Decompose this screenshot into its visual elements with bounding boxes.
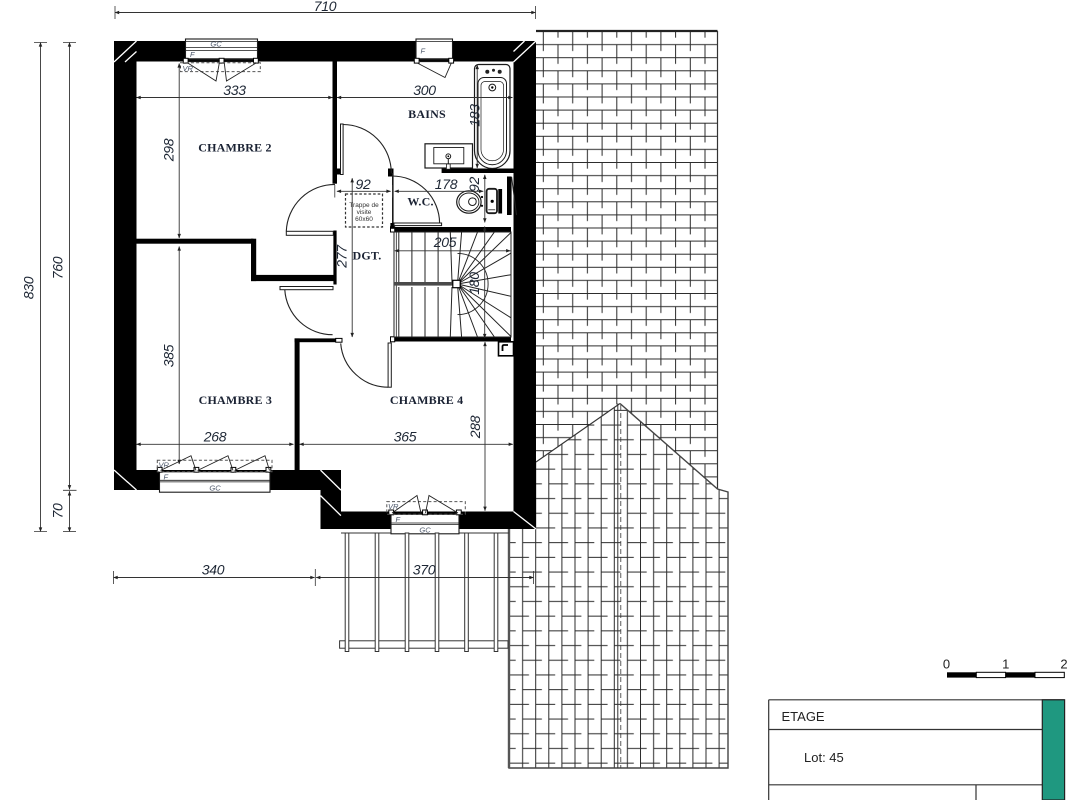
svg-text:DGT.: DGT. (353, 249, 382, 263)
svg-text:Trappe de: Trappe de (349, 202, 379, 209)
svg-text:GC: GC (419, 525, 431, 534)
svg-text:F: F (396, 515, 401, 524)
svg-text:F: F (421, 47, 426, 56)
svg-text:VR: VR (159, 460, 170, 469)
svg-text:370: 370 (413, 562, 436, 578)
svg-text:760: 760 (50, 256, 66, 279)
svg-text:365: 365 (394, 429, 417, 445)
svg-text:F: F (164, 473, 169, 482)
svg-text:2: 2 (1060, 657, 1067, 672)
svg-text:visite: visite (357, 209, 372, 216)
svg-text:92: 92 (466, 177, 482, 192)
svg-text:710: 710 (314, 0, 337, 14)
svg-text:Lot: 45: Lot: 45 (804, 750, 844, 765)
svg-text:CHAMBRE 4: CHAMBRE 4 (390, 393, 463, 407)
svg-text:288: 288 (467, 415, 483, 439)
svg-text:0: 0 (943, 657, 950, 672)
svg-text:F: F (190, 50, 195, 59)
svg-text:830: 830 (21, 276, 37, 299)
svg-text:180: 180 (466, 272, 482, 295)
svg-text:1: 1 (1002, 657, 1009, 672)
svg-text:GC: GC (210, 40, 222, 49)
svg-text:BAINS: BAINS (408, 107, 446, 121)
svg-text:205: 205 (433, 234, 457, 250)
svg-text:298: 298 (161, 138, 177, 162)
svg-text:CHAMBRE 2: CHAMBRE 2 (198, 141, 271, 155)
svg-text:385: 385 (161, 344, 177, 367)
svg-text:300: 300 (413, 82, 436, 98)
svg-text:60x60: 60x60 (355, 216, 373, 223)
svg-text:340: 340 (202, 562, 225, 578)
svg-text:92: 92 (356, 176, 371, 192)
svg-text:277: 277 (334, 244, 350, 269)
svg-text:GC: GC (209, 483, 221, 492)
svg-text:ETAGE: ETAGE (782, 709, 825, 724)
svg-text:183: 183 (467, 104, 483, 127)
svg-text:CHAMBRE 3: CHAMBRE 3 (199, 393, 272, 407)
svg-text:70: 70 (50, 503, 66, 518)
svg-text:W.C.: W.C. (407, 195, 433, 209)
svg-text:333: 333 (223, 82, 246, 98)
svg-text:268: 268 (203, 429, 227, 445)
svg-text:178: 178 (435, 176, 458, 192)
